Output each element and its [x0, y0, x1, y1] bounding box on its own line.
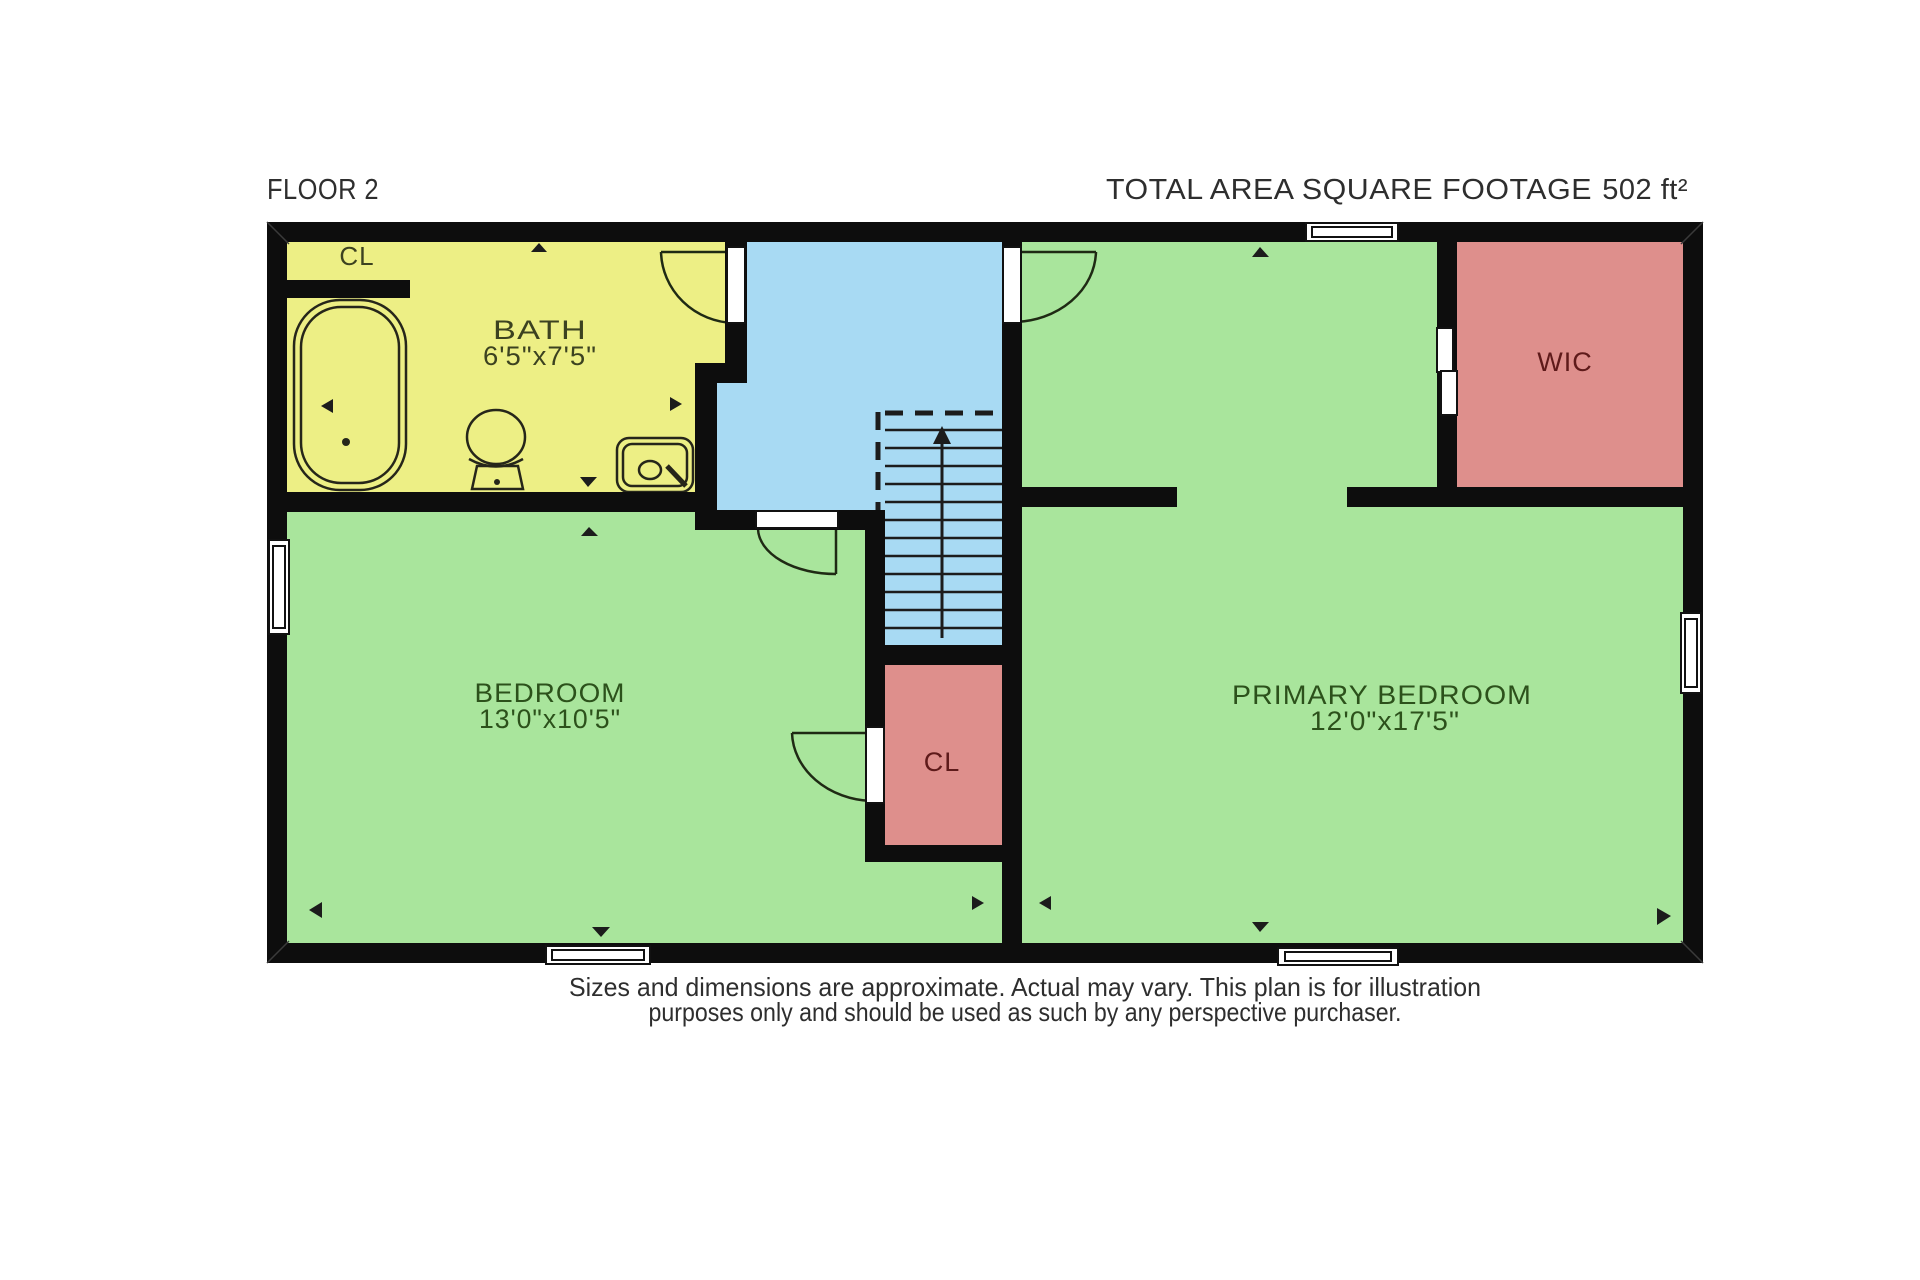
wic-label: WIC	[1537, 347, 1592, 377]
window-bedroom-bottom	[546, 946, 650, 964]
bath-dimensions-label: 6'5"x7'5"	[483, 341, 597, 371]
center-closet-label: CL	[924, 747, 961, 777]
bedroom-dimensions-label: 13'0"x10'5"	[479, 704, 621, 734]
total-area-label: TOTAL AREA SQUARE FOOTAGE	[1106, 174, 1592, 206]
floor-title: FLOOR 2	[267, 174, 379, 206]
page-canvas: FLOOR 2 TOTAL AREA SQUARE FOOTAGE 502 ft…	[0, 0, 1920, 1280]
wall-stairs-closet-west	[865, 510, 885, 862]
wall-closet-bottom	[865, 845, 1022, 862]
wall-closet-top	[865, 645, 1022, 665]
bathtub-drain	[342, 438, 350, 446]
wall-bath-closet	[267, 280, 410, 298]
hall-bedroom-door-leaf	[756, 511, 838, 528]
wall-bath-east-jog	[695, 363, 747, 383]
bath-door-leaf	[727, 247, 745, 323]
window-bedroom-left	[269, 540, 289, 634]
primary-bedroom-dimensions-label: 12'0"x17'5"	[1310, 706, 1460, 736]
window-primary-right	[1681, 613, 1701, 693]
closet-door-leaf	[866, 727, 884, 803]
window-primary-top	[1306, 223, 1398, 241]
disclaimer-line-2: purposes only and should be used as such…	[649, 997, 1402, 1027]
wall-bath-bottom	[267, 492, 717, 512]
wall-outer-bottom	[267, 943, 1703, 963]
wall-primary-mid-right	[1347, 487, 1683, 507]
primary-door-leaf	[1003, 247, 1021, 323]
toilet-button	[494, 479, 500, 485]
wall-outer-right	[1683, 222, 1703, 963]
window-primary-bottom	[1278, 948, 1398, 965]
disclaimer: Sizes and dimensions are approximate. Ac…	[569, 972, 1481, 1027]
wall-east-divider	[1002, 242, 1022, 943]
bath-closet-label: CL	[339, 241, 374, 271]
header: FLOOR 2 TOTAL AREA SQUARE FOOTAGE 502 ft…	[267, 174, 1688, 206]
wall-outer-top	[267, 222, 1703, 242]
total-area-value: 502 ft²	[1602, 174, 1688, 206]
wall-primary-mid-left	[1022, 487, 1177, 507]
floor-plan-svg: FLOOR 2 TOTAL AREA SQUARE FOOTAGE 502 ft…	[0, 0, 1920, 1280]
wic-sliding-door	[1437, 328, 1457, 415]
